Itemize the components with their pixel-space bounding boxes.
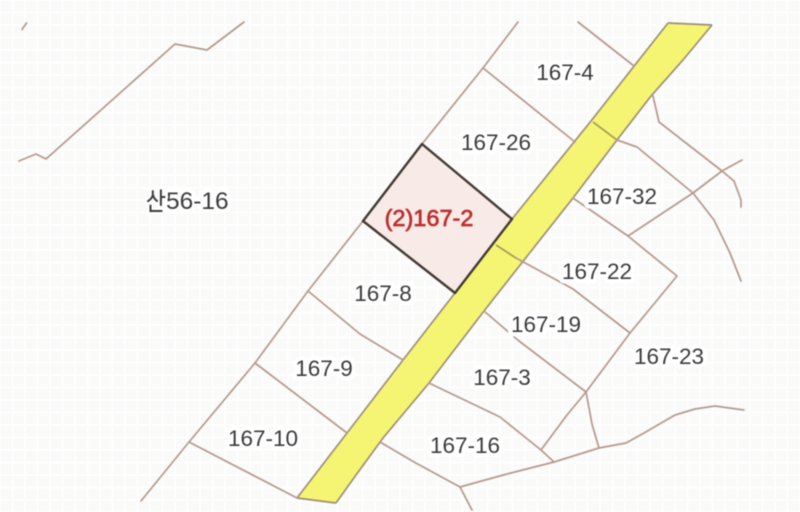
svg-text:167-19: 167-19 bbox=[511, 312, 581, 337]
svg-text:167-22: 167-22 bbox=[562, 259, 632, 284]
svg-text:167-8: 167-8 bbox=[354, 281, 412, 306]
svg-text:167-16: 167-16 bbox=[430, 433, 500, 458]
svg-text:167-3: 167-3 bbox=[473, 365, 531, 390]
svg-text:167-23: 167-23 bbox=[634, 344, 704, 369]
svg-text:(2)167-2: (2)167-2 bbox=[385, 205, 474, 231]
svg-text:167-32: 167-32 bbox=[587, 184, 657, 209]
svg-text:167-26: 167-26 bbox=[461, 130, 531, 155]
svg-text:167-4: 167-4 bbox=[536, 60, 594, 85]
svg-text:56-16: 56-16 bbox=[166, 188, 229, 215]
svg-text:167-9: 167-9 bbox=[295, 356, 353, 381]
svg-text:167-10: 167-10 bbox=[228, 426, 298, 451]
